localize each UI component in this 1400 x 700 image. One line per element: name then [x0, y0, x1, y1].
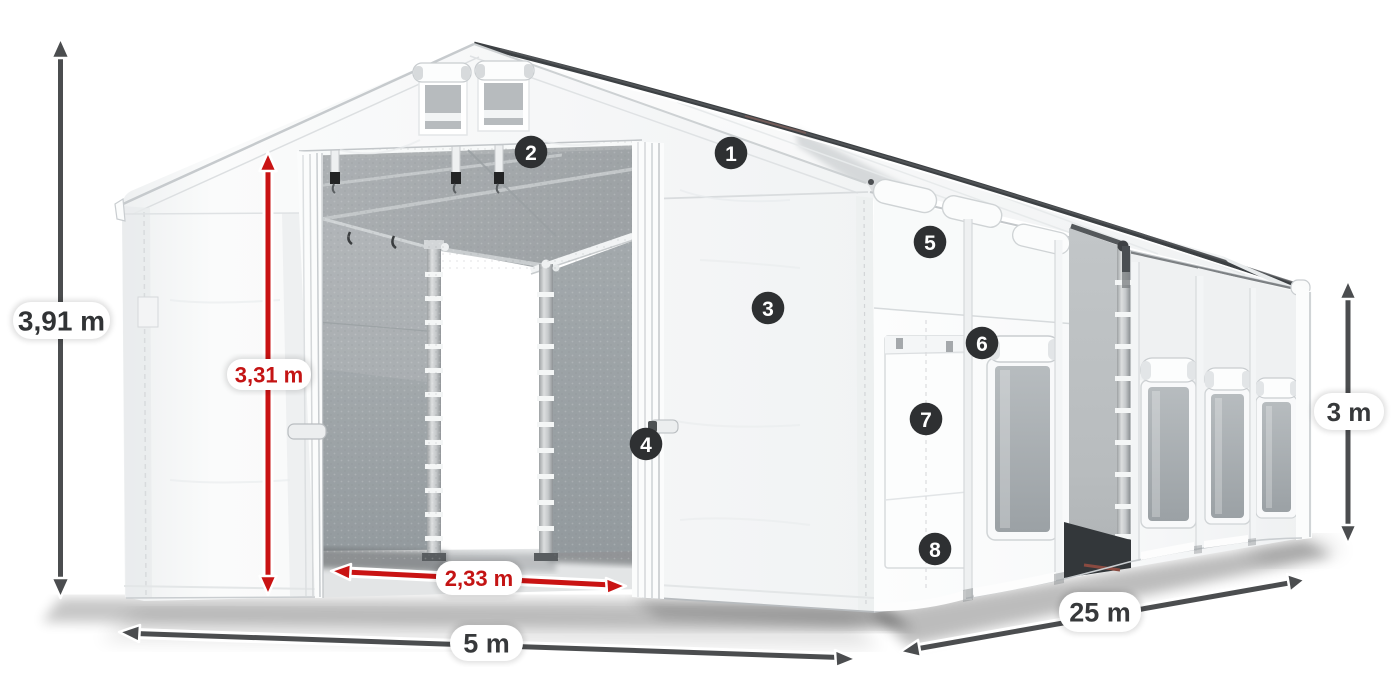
svg-text:3 m: 3 m [1327, 397, 1372, 427]
svg-text:3: 3 [762, 298, 774, 321]
svg-text:2: 2 [525, 142, 537, 165]
svg-text:1: 1 [725, 143, 737, 166]
svg-text:8: 8 [929, 539, 941, 562]
svg-text:4: 4 [640, 434, 652, 457]
svg-text:25 m: 25 m [1069, 598, 1131, 628]
svg-text:7: 7 [920, 409, 932, 432]
svg-text:5: 5 [924, 232, 936, 255]
svg-text:5 m: 5 m [463, 629, 510, 659]
svg-text:3,31 m: 3,31 m [235, 363, 304, 388]
svg-text:2,33 m: 2,33 m [445, 566, 514, 591]
svg-text:6: 6 [976, 333, 988, 356]
svg-text:3,91 m: 3,91 m [18, 306, 105, 337]
